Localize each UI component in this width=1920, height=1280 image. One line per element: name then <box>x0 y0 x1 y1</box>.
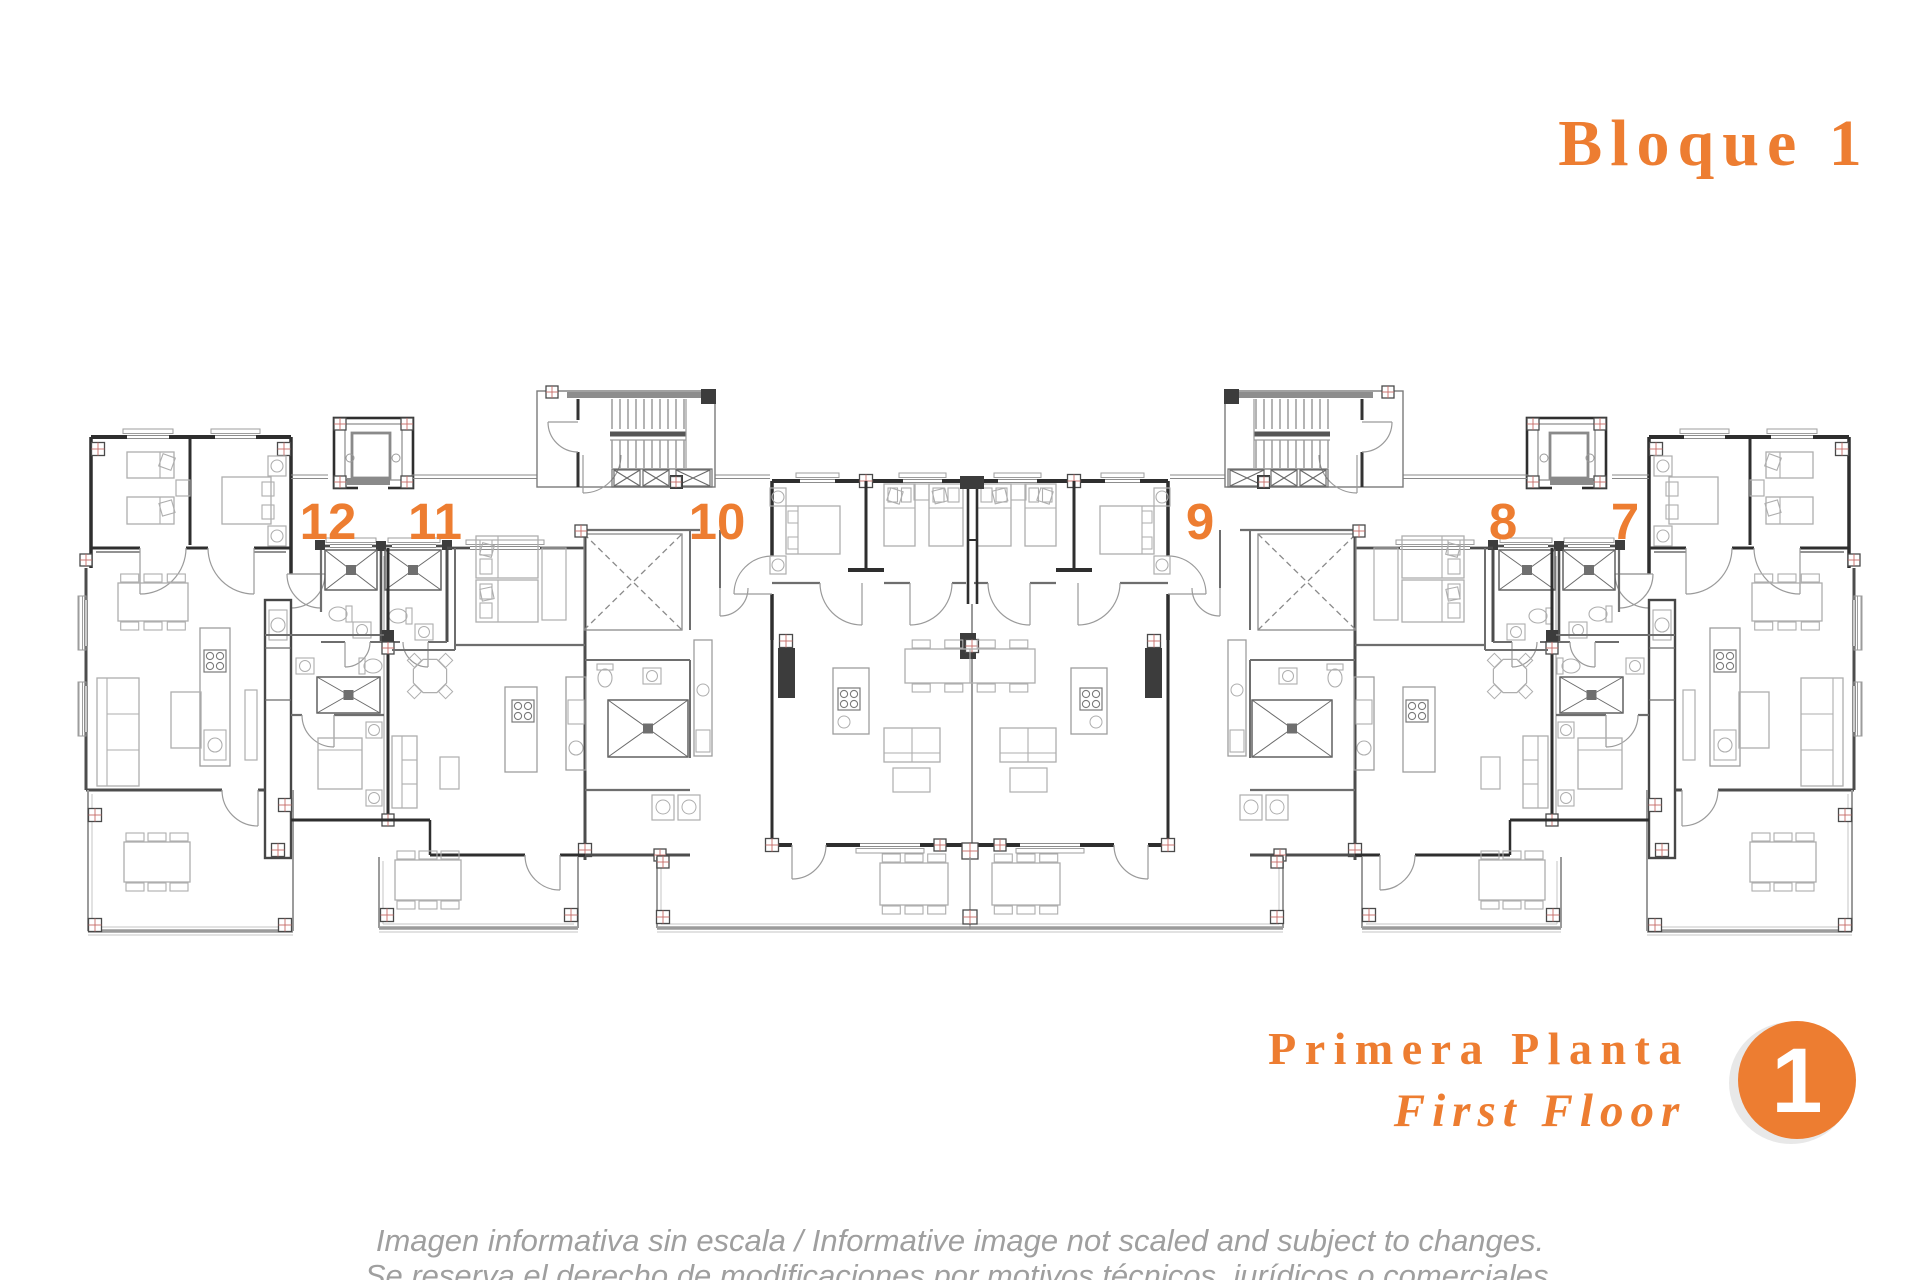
svg-text:First Floor: First Floor <box>1393 1085 1687 1137</box>
svg-text:9: 9 <box>1186 493 1214 550</box>
svg-text:1: 1 <box>1771 1030 1822 1132</box>
svg-text:11: 11 <box>408 493 462 550</box>
svg-text:8: 8 <box>1489 493 1517 550</box>
svg-text:Bloque 1: Bloque 1 <box>1558 107 1870 180</box>
svg-text:7: 7 <box>1611 493 1639 550</box>
svg-text:Se reserva el derecho de modif: Se reserva el derecho de modificaciones … <box>365 1258 1557 1280</box>
svg-text:10: 10 <box>689 493 746 550</box>
svg-text:12: 12 <box>300 493 357 550</box>
svg-text:Imagen informativa sin escala: Imagen informativa sin escala / Informat… <box>376 1223 1544 1258</box>
svg-text:Primera Planta: Primera Planta <box>1268 1023 1690 1074</box>
